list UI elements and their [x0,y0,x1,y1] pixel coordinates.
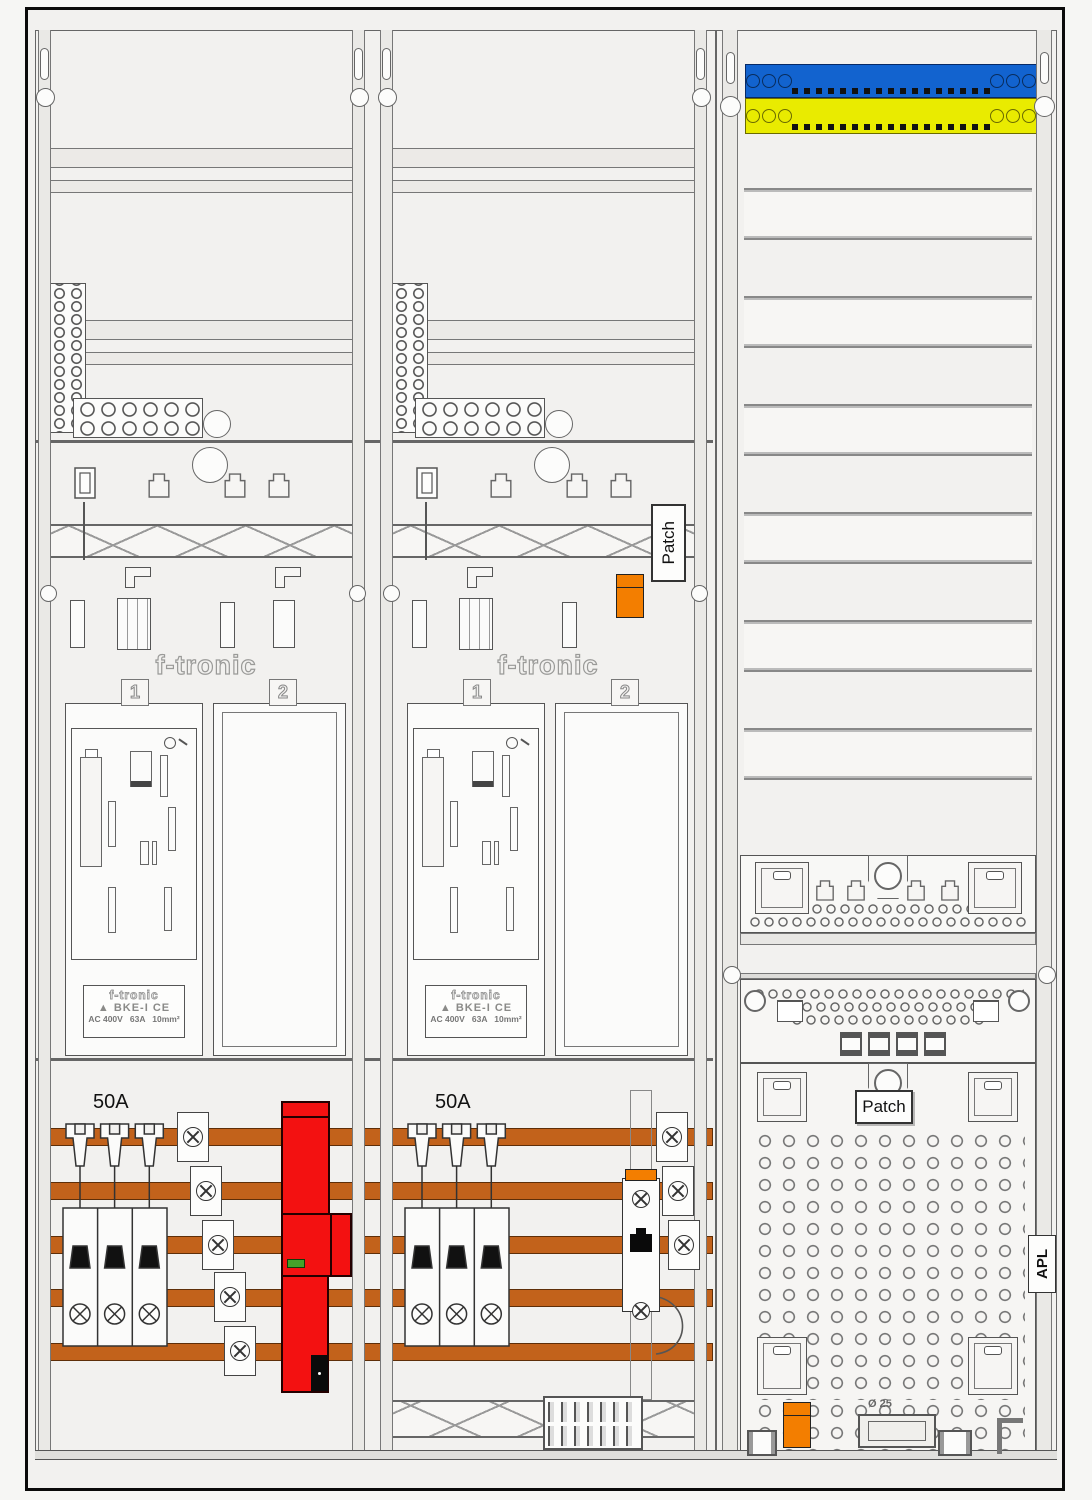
pad-pill [773,1346,791,1355]
bay-inner-frame [222,712,337,1047]
meter-slot-2-label: 2 [611,679,639,706]
empty-device-row [744,404,1032,456]
type-label-model: BKE-I [456,1002,491,1014]
mounting-pad [968,1337,1018,1395]
busbar-clamp-teeth [792,88,990,94]
slot-number: 2 [620,682,630,703]
status-indicator-green [287,1259,305,1268]
knockout-diameter-label: Ø 25 [868,1398,892,1410]
rail-slot [696,48,705,80]
rj45-outlet-icon [609,470,633,500]
terminal-hole [746,74,760,88]
ce-mark: CE [153,1002,170,1014]
busbar-end-block [990,99,1036,133]
hole-row [752,988,1024,999]
meter-contact-slot [473,781,493,787]
phillips-screw-icon [196,1181,216,1201]
empty-device-row [744,620,1032,672]
switch-toggle [311,1355,328,1391]
patch-vertical-text: Patch [659,521,679,564]
conduit-entry-hole [534,447,570,483]
din-rail [393,148,694,168]
cable-clamp-icon [896,1032,918,1056]
rail-hole [378,88,397,107]
knockout-inner [868,1421,926,1441]
busbar-screw-terminal [202,1220,234,1270]
field-separator-line [715,30,717,1456]
meter-bay-2 [555,703,688,1056]
seal-screw-icon [164,737,176,749]
cable-grommet [545,410,573,438]
terminal-hole [990,109,1004,123]
rj45-port-icon [940,878,960,902]
rail-slot [354,48,363,80]
rail-clip [459,598,493,650]
meter-slot-2-label: 2 [269,679,297,706]
rj45-outlet-icon [147,470,171,500]
meter-contact-slot [140,841,149,865]
meter-bay-2 [213,703,346,1056]
rj45-outlet-icon [565,470,589,500]
rail-slot [40,48,49,80]
phillips-screw-icon [668,1181,688,1201]
logo-emblem-icon [874,862,902,890]
phillips-screw-icon [632,1302,650,1320]
triangle-logo-icon: ▲ [98,1002,110,1014]
apl-text: APL [1034,1249,1051,1279]
phillips-screw-icon [183,1127,203,1147]
busbar-end-block [746,65,792,97]
phillips-screw-icon [632,1190,650,1208]
rj45-jack-icon [415,466,439,504]
bracket-cutout [755,862,809,914]
mounting-hook-leg [275,576,285,588]
terminal-hole [1022,109,1036,123]
bke-type-label: f-tronic ▲ BKE-I CE AC 400V 63A 10mm² [425,985,527,1038]
rj45-outlet-icon [223,470,247,500]
terminal-hole [1006,109,1020,123]
seal-screw-icon [506,737,518,749]
rail-hole [723,966,741,984]
meter-contact-slot [506,887,514,931]
rj45-port-icon [846,878,866,902]
clamp-row [548,1402,638,1422]
pe-busbar-yellow [745,98,1037,134]
patch-panel-label: Patch [855,1090,913,1124]
bke-type-label: f-tronic ▲ BKE-I CE AC 400V 63A 10mm² [83,985,185,1038]
din-rail [51,352,352,365]
busbar-screw-terminal [656,1112,688,1162]
plate-fixture [973,1000,999,1022]
rail-hole [40,585,57,602]
busbar-screw-terminal [177,1112,209,1162]
rail-hole [692,88,711,107]
busbar-body [792,99,990,133]
phillips-screw-icon [662,1127,682,1147]
corner-bolt [1008,990,1030,1012]
pad-pill [984,1346,1002,1355]
phillips-screw-icon [674,1235,694,1255]
network-cable [425,502,427,560]
busbar-screw-terminal [214,1272,246,1322]
rail-clip [562,602,577,648]
busbar-screw-terminal [668,1220,700,1270]
terminal-block [415,398,545,438]
sls-breaker-3pole [404,1122,510,1348]
meter-contact-slot [164,887,172,931]
cabinet-base-bar [35,1450,1057,1460]
bracket-base-bar [740,933,1036,945]
rail-hole [1038,966,1056,984]
seal-wire [178,738,187,745]
rj45-outlet-icon [489,470,513,500]
cable-grommet [203,410,231,438]
rail-hole [720,96,741,117]
busbar-body [792,65,990,97]
main-switch-red-top [281,1101,330,1215]
type-label-rating: AC 400V 63A 10mm² [84,1014,184,1024]
terminal-block [73,398,203,438]
meter-contact-tab [427,749,440,758]
busbar-screw-terminal [224,1326,256,1376]
terminal-hole [990,74,1004,88]
meter-contact-slot [108,801,116,847]
type-label-model: BKE-I [114,1002,149,1014]
rj45-port-icon [815,878,835,902]
bracket-cutout [968,862,1022,914]
meter-contact-slot [450,801,458,847]
rail-hole [350,88,369,107]
rail-clip [117,598,151,650]
terminal-clamp-block [543,1396,643,1450]
tap-device-orange-cap [625,1169,657,1181]
type-label-brand: f-tronic [84,988,184,1002]
hole-row [748,916,1030,928]
zone-separator [35,1058,713,1061]
meter-contact-slot [152,841,157,865]
phillips-screw-icon [230,1341,250,1361]
empty-device-row [744,188,1032,240]
empty-device-row [744,728,1032,780]
meter-contact-slot [131,781,151,787]
rail-hole [36,88,55,107]
zone-separator [35,440,713,443]
neutral-busbar-blue [745,64,1037,98]
triangle-logo-icon: ▲ [440,1002,452,1014]
slot-number: 1 [130,682,140,703]
din-rail [393,352,694,365]
breaker-rating-label: 50A [93,1091,129,1114]
mounting-rail [380,30,393,1456]
pad-pill [773,1081,791,1090]
apl-label: APL [1028,1235,1056,1293]
cable-clamp [938,1430,972,1456]
phillips-screw-icon [208,1235,228,1255]
meter-contact-slot [168,807,176,851]
rail-hole [349,585,366,602]
knockout-frame [858,1414,936,1448]
din-rail [393,320,694,340]
busbar-screw-terminal [662,1166,694,1216]
hole-row [800,1001,976,1012]
bke-mounting-plate [413,728,539,960]
orange-connector [616,587,644,618]
empty-device-row [744,296,1032,348]
meter-contact-slot [494,841,499,865]
patch-vertical-label: Patch [651,504,686,582]
din-rail [51,180,352,193]
cable-clamp [747,1430,777,1456]
meter-contact-bar [422,757,444,867]
cable-clamp-icon [924,1032,946,1056]
mounting-pad [757,1337,807,1395]
rail-hole [1034,96,1055,117]
type-label-brand: f-tronic [426,988,526,1002]
slot-number: 2 [278,682,288,703]
sls-breaker-3pole [62,1122,168,1348]
meter-contact-slot [450,887,458,933]
mounting-rail [352,30,365,1456]
meter-contact-tab [85,749,98,758]
pad-pill [984,1081,1002,1090]
cutout-pill [986,871,1004,880]
din-rail [51,320,352,340]
mounting-pad [968,1072,1018,1122]
rail-hole [383,585,400,602]
orange-connector-top [783,1402,811,1416]
terminal-hole [1022,74,1036,88]
rail-slot [1040,52,1049,84]
f-tronic-watermark: f-tronic [377,650,719,681]
slot-number: 1 [472,682,482,703]
meter-contact-slot [502,755,510,797]
truss-rail [51,524,352,558]
bay-inner-frame [564,712,679,1047]
mounting-pad [757,1072,807,1122]
cutout-pill [773,871,791,880]
terminal-hole [778,109,792,123]
meter-slot-1-label: 1 [121,679,149,706]
tap-toggle [630,1234,652,1252]
din-rail [393,180,694,193]
meter-contact-bar [80,757,102,867]
corner-bolt [744,990,766,1012]
plate-fixture [777,1000,803,1022]
meter-contact-slot [510,807,518,851]
busbar-end-block [746,99,792,133]
patch-panel-text: Patch [862,1097,905,1117]
mounting-hook-leg [125,576,135,588]
mounting-hook-leg [467,576,477,588]
orange-connector-top [616,574,644,588]
busbar-clamp-teeth [792,124,990,130]
corner-bracket [997,1418,1023,1454]
bke-mounting-plate [71,728,197,960]
rj45-port-icon [906,878,926,902]
meter-contact-slot [108,887,116,933]
mounting-rail [38,30,51,1456]
ce-mark: CE [495,1002,512,1014]
terminal-hole [778,74,792,88]
meter-cabinet-drawing: Patch f-tronic f-tronic 1 2 1 2 f-tronic [0,0,1092,1500]
busbar-end-block [990,65,1036,97]
toggle-dot [318,1372,321,1375]
hole-row [790,1014,986,1025]
rail-clip [412,600,427,648]
mounting-rail [722,30,738,1456]
orange-connector [783,1415,811,1448]
f-tronic-watermark: f-tronic [35,650,377,681]
hole-row [810,903,970,914]
truss-rail [393,524,694,558]
rail-clip [220,602,235,648]
cable-clamp-icon [868,1032,890,1056]
rail-slot [382,48,391,80]
terminal-hole [762,109,776,123]
type-label-model-row: ▲ BKE-I CE [426,1002,526,1014]
busbar-screw-terminal [190,1166,222,1216]
rail-slot [726,52,735,84]
meter-contact-slot [160,755,168,797]
empty-device-row [744,512,1032,564]
type-label-rating: AC 400V 63A 10mm² [426,1014,526,1024]
phillips-screw-icon [220,1287,240,1307]
terminal-hole [746,109,760,123]
conduit-entry-hole [192,447,228,483]
rj45-outlet-icon [267,470,291,500]
rail-hole [691,585,708,602]
rj45-jack-icon [73,466,97,504]
rail-clip [70,600,85,648]
type-label-model-row: ▲ BKE-I CE [84,1002,184,1014]
terminal-hole [762,74,776,88]
network-cable [83,502,85,560]
meter-slot-1-label: 1 [463,679,491,706]
rail-clip [273,600,295,648]
cable-clamp-icon [840,1032,862,1056]
breaker-rating-label: 50A [435,1091,471,1114]
switch-cap-line [283,1116,328,1118]
switch-divider-line [330,1215,332,1275]
seal-wire [520,738,529,745]
meter-contact-slot [482,841,491,865]
clamp-row [548,1426,638,1446]
terminal-hole [1006,74,1020,88]
din-rail [51,148,352,168]
